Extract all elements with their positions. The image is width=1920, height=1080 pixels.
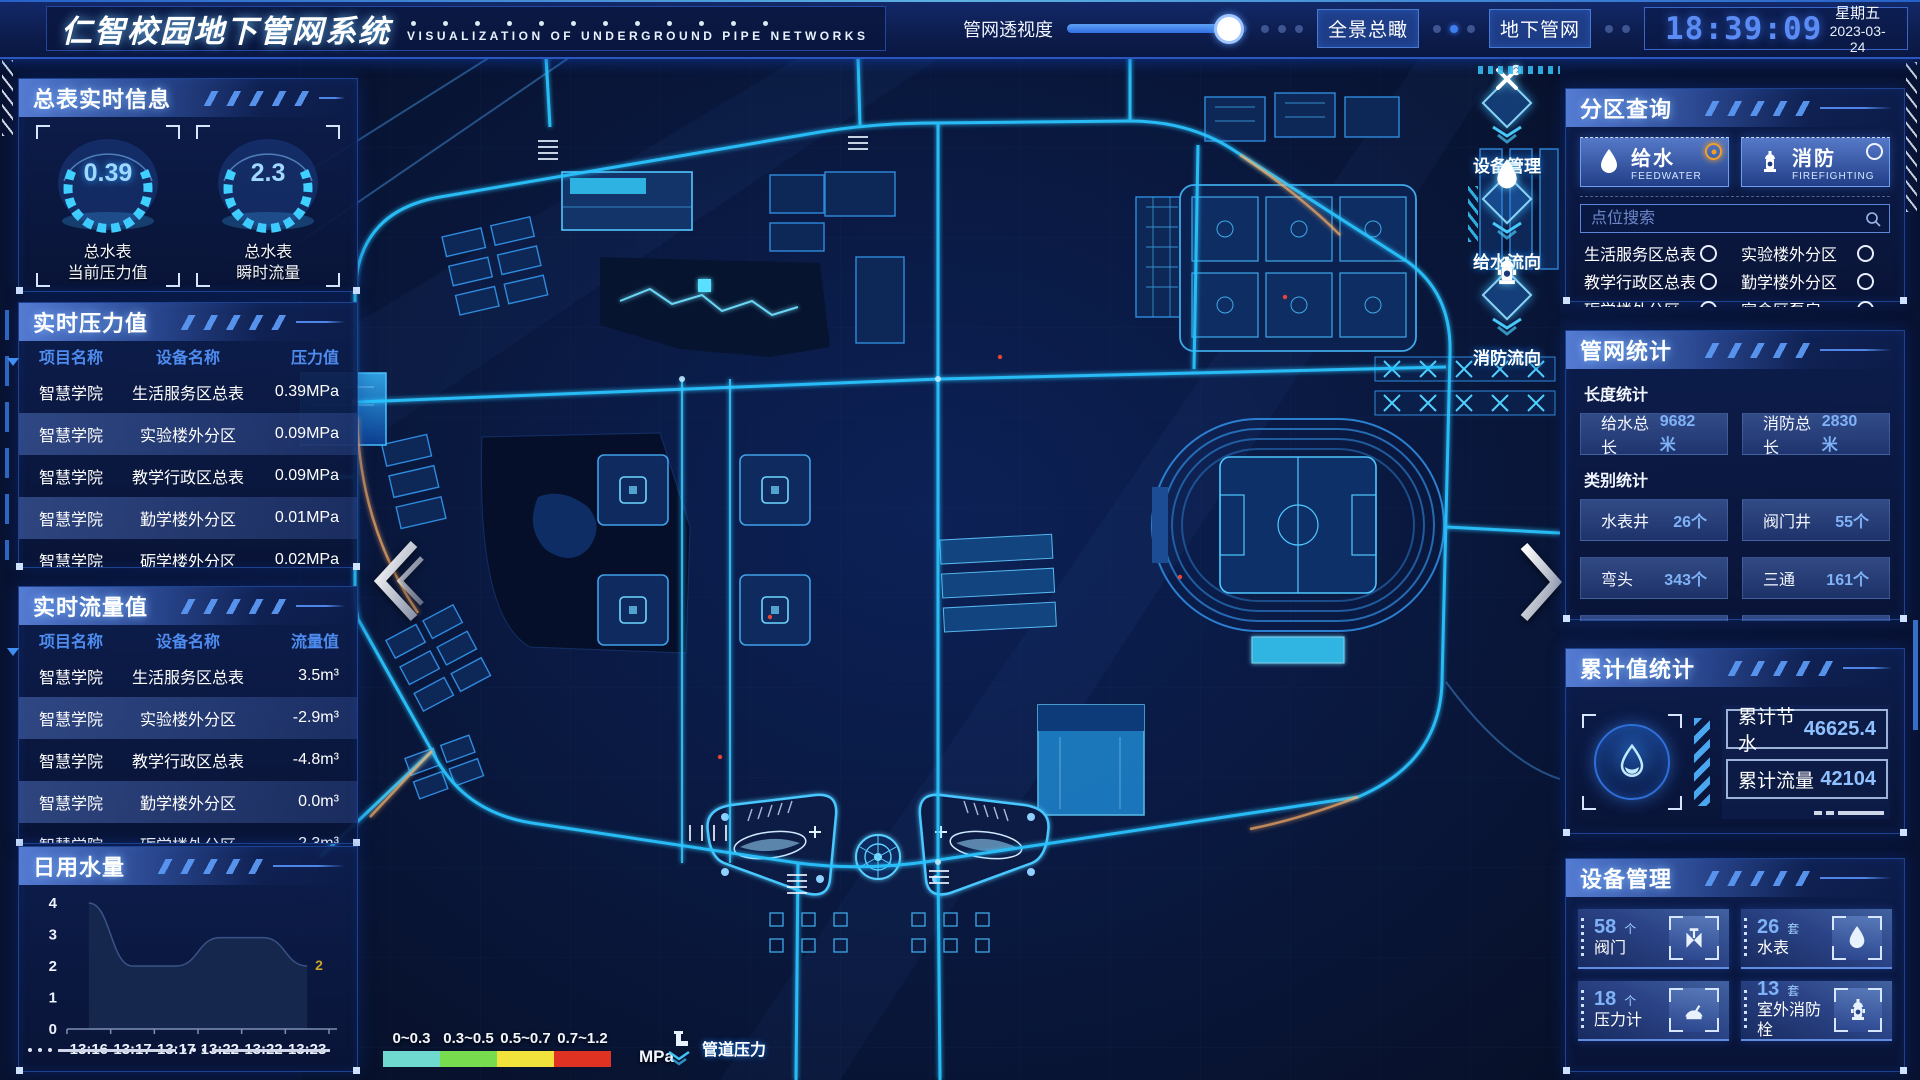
table-row: 智慧学院勤学楼外分区0.01MPa bbox=[19, 497, 357, 539]
app-title-box: 仁智校园地下管网系统 VISUALIZATION OF UNDERGROUND … bbox=[46, 6, 886, 51]
svg-text:3: 3 bbox=[49, 927, 57, 944]
legend-range-label: 0.7~1.2 bbox=[557, 1030, 607, 1051]
stat-box: 消防总长2830米 bbox=[1742, 413, 1890, 455]
panel-header: 总表实时信息 bbox=[19, 79, 357, 117]
radio-selected[interactable] bbox=[1705, 143, 1722, 160]
gauge-label: 瞬时流量 bbox=[196, 263, 340, 284]
stat-box: 给水总长9682米 bbox=[1580, 413, 1728, 455]
panel-title: 分区查询 bbox=[1580, 92, 1672, 124]
search-input[interactable] bbox=[1589, 209, 1865, 229]
table-header-row: 项目名称设备名称流量值 bbox=[19, 625, 357, 655]
gauge-dial: 2.3 bbox=[198, 125, 338, 237]
legend-segment: 0.5~0.7 bbox=[497, 1030, 554, 1067]
realtime-pressure-panel: 实时压力值 项目名称设备名称压力值 智慧学院生活服务区总表0.39MPa 智慧学… bbox=[18, 302, 358, 568]
header-bar: 仁智校园地下管网系统 VISUALIZATION OF UNDERGROUND … bbox=[0, 0, 1920, 59]
daily-water-chart: 13:1613:1713:1713:2213:2213:23012342 bbox=[21, 887, 357, 1074]
stat-box-clipped bbox=[1580, 615, 1728, 621]
header-stripes-decoration bbox=[1698, 871, 1810, 886]
transparency-slider[interactable] bbox=[1067, 24, 1247, 33]
legend-segment: 0.7~1.2 bbox=[554, 1030, 611, 1067]
legend-color-swatch bbox=[554, 1051, 611, 1067]
header-stripes-decoration bbox=[151, 859, 263, 874]
header-line-decoration bbox=[1820, 349, 1892, 351]
legend-range-label: 0.3~0.5 bbox=[443, 1030, 493, 1051]
panorama-overview-button[interactable]: 全景总瞰 bbox=[1317, 9, 1419, 48]
water-icon-frame bbox=[1582, 714, 1682, 810]
bottom-dots-decoration bbox=[28, 1048, 330, 1052]
daily-water-panel: 日用水量 13:1613:1713:1713:2213:2213:2301234… bbox=[18, 846, 358, 1072]
realtime-flow-panel: 实时流量值 项目名称设备名称流量值 智慧学院生活服务区总表3.5m³ 智慧学院实… bbox=[18, 586, 358, 844]
dashboard: 设备管理 给水流向 消防流向 0~0.3 0.3~0.5 0.5~0.7 0.7… bbox=[0, 0, 1920, 1080]
header-line-decoration bbox=[296, 321, 345, 323]
header-stripes-decoration bbox=[197, 91, 309, 106]
header-line-decoration bbox=[296, 605, 345, 607]
dot-separator bbox=[1605, 25, 1630, 33]
hydrant-icon bbox=[1491, 254, 1523, 288]
pressure-gauge-icon bbox=[1681, 998, 1707, 1022]
cumulative-item: 累计流量42104 bbox=[1726, 759, 1888, 799]
header-line-decoration bbox=[273, 865, 345, 867]
legend-color-swatch bbox=[497, 1051, 554, 1067]
chevron-down-icon bbox=[666, 1050, 692, 1066]
table-row: 智慧学院砺学楼外分区-2.3m³ bbox=[19, 823, 357, 843]
edge-hatch-decoration bbox=[2, 60, 13, 136]
zone-query-panel: 分区查询 给水 FEEDWATER 消防 FIREFIGHTING bbox=[1565, 88, 1905, 302]
gauge-label: 总水表 bbox=[36, 242, 180, 263]
radio-unselected[interactable] bbox=[1857, 245, 1874, 262]
list-item[interactable]: 勤学楼外分区 bbox=[1737, 267, 1894, 295]
gauge-label: 总水表 bbox=[196, 242, 340, 263]
clock-panel: 18:39:09 星期五 2023-03-24 bbox=[1644, 7, 1908, 50]
search-icon bbox=[1865, 211, 1881, 227]
header-stripes-decoration bbox=[174, 599, 286, 614]
table-row: 智慧学院实验楼外分区-2.9m³ bbox=[19, 697, 357, 739]
radio-unselected[interactable] bbox=[1857, 301, 1874, 308]
legend-color-swatch bbox=[440, 1051, 497, 1067]
pipe-pressure-label: 管道压力 bbox=[702, 1036, 766, 1060]
title-dots-decoration bbox=[411, 21, 868, 26]
svg-text:4: 4 bbox=[49, 895, 58, 912]
water-drop-icon bbox=[1492, 158, 1522, 192]
legend-segment: 0~0.3 bbox=[383, 1030, 440, 1067]
scrollbar-thumb[interactable] bbox=[1913, 620, 1918, 730]
svg-text:1: 1 bbox=[49, 990, 57, 1007]
category-stats-label: 类别统计 bbox=[1584, 467, 1904, 491]
list-item[interactable]: 砺学楼外分区 bbox=[1580, 295, 1737, 307]
gauge-dial: 0.39 bbox=[38, 125, 178, 237]
dot-separator bbox=[1433, 25, 1475, 33]
table-row: 智慧学院砺学楼外分区0.02MPa bbox=[19, 539, 357, 567]
header-line-decoration bbox=[1843, 667, 1892, 669]
legend-range-label: 0.5~0.7 bbox=[500, 1030, 550, 1051]
svg-text:0: 0 bbox=[49, 1021, 57, 1038]
device-card-water-meters[interactable]: 26套 水表 bbox=[1741, 909, 1892, 969]
radio-unselected[interactable] bbox=[1857, 273, 1874, 290]
dot-separator bbox=[1261, 25, 1303, 33]
panel-title: 管网统计 bbox=[1580, 334, 1672, 366]
hydrant-icon bbox=[1846, 997, 1870, 1023]
app-subtitle: VISUALIZATION OF UNDERGROUND PIPE NETWOR… bbox=[407, 29, 868, 43]
zone-point-list: 生活服务区总表 实验楼外分区 教学行政区总表 勤学楼外分区 砺学楼外分区 宿舍区… bbox=[1580, 239, 1894, 307]
svg-text:0.39: 0.39 bbox=[83, 159, 132, 187]
cyan-hatch-decoration bbox=[1478, 66, 1560, 74]
point-search-box[interactable] bbox=[1580, 204, 1890, 233]
pipe-icon bbox=[668, 1030, 690, 1050]
panel-title: 实时压力值 bbox=[33, 306, 148, 338]
pipe-pressure-legend: 0~0.3 0.3~0.5 0.5~0.7 0.7~1.2 MPa bbox=[383, 1030, 674, 1067]
legend-range-label: 0~0.3 bbox=[393, 1030, 431, 1051]
cumulative-stats-panel: 累计值统计 累计节水46625.4 累计流量42104 bbox=[1565, 648, 1905, 834]
radio-unselected[interactable] bbox=[1866, 143, 1883, 160]
svg-text:2: 2 bbox=[49, 958, 57, 975]
flow-gauge-widget: 2.3 总水表 瞬时流量 bbox=[196, 125, 340, 287]
device-management-panel: 设备管理 58个 阀门 26套 水表 18个 压力计 bbox=[1565, 858, 1905, 1072]
map-prev-arrow[interactable] bbox=[368, 536, 426, 626]
table-row: 智慧学院生活服务区总表0.39MPa bbox=[19, 371, 357, 413]
transparency-slider-label: 管网透视度 bbox=[963, 16, 1053, 42]
network-stats-panel: 管网统计 长度统计 给水总长9682米 消防总长2830米 类别统计 水表井26… bbox=[1565, 330, 1905, 620]
legend-segment: 0.3~0.5 bbox=[440, 1030, 497, 1067]
divider bbox=[1580, 196, 1890, 197]
list-item[interactable]: 教学行政区总表 bbox=[1580, 267, 1737, 295]
header-stripes-decoration bbox=[1721, 661, 1833, 676]
stat-box: 三通161个 bbox=[1742, 557, 1890, 599]
stat-box: 阀门井55个 bbox=[1742, 499, 1890, 541]
radio-unselected[interactable] bbox=[1700, 245, 1717, 262]
pipe-pressure-flag: 管道压力 bbox=[666, 1030, 766, 1066]
cyan-hatch-decoration bbox=[1468, 186, 1478, 242]
water-drop-icon bbox=[1594, 724, 1670, 800]
slider-thumb[interactable] bbox=[1214, 14, 1244, 44]
list-item[interactable]: 宿舍区泵房 bbox=[1737, 295, 1894, 307]
header-line-decoration bbox=[319, 97, 345, 99]
header-line-decoration bbox=[1820, 107, 1892, 109]
water-drop-icon bbox=[1597, 148, 1621, 176]
table-row: 智慧学院生活服务区总表3.5m³ bbox=[19, 655, 357, 697]
panel-title: 日用水量 bbox=[33, 850, 125, 882]
header-stripes-decoration bbox=[1698, 343, 1810, 358]
underground-network-button[interactable]: 地下管网 bbox=[1489, 9, 1591, 48]
panel-pointer-decoration bbox=[7, 358, 19, 366]
map-next-arrow[interactable] bbox=[1516, 540, 1564, 624]
device-card-hydrants[interactable]: 13套 室外消防栓 bbox=[1741, 981, 1892, 1041]
panel-title: 累计值统计 bbox=[1580, 652, 1695, 684]
tab-feedwater[interactable]: 给水 FEEDWATER bbox=[1580, 137, 1729, 187]
panel-title: 设备管理 bbox=[1580, 862, 1672, 894]
map-marker-fire-flow[interactable]: 消防流向 bbox=[1468, 254, 1546, 369]
clock-time: 18:39:09 bbox=[1665, 11, 1822, 47]
water-drop-icon bbox=[1846, 925, 1868, 951]
meter-info-panel: 总表实时信息 0.39 总水表 当前压力值 2.3 bbox=[18, 78, 358, 292]
marker-label: 消防流向 bbox=[1468, 344, 1546, 369]
stat-box: 弯头343个 bbox=[1580, 557, 1728, 599]
edge-hatch-decoration bbox=[1906, 62, 1917, 212]
cumulative-item: 累计节水46625.4 bbox=[1726, 709, 1888, 749]
slider-fill bbox=[1067, 24, 1229, 33]
tab-firefighting[interactable]: 消防 FIREFIGHTING bbox=[1741, 137, 1890, 187]
clock-weekday: 星期五 bbox=[1822, 2, 1893, 23]
stat-box-clipped bbox=[1742, 615, 1890, 621]
svg-text:2: 2 bbox=[315, 957, 323, 973]
table-header-row: 项目名称设备名称压力值 bbox=[19, 341, 357, 371]
stat-box: 水表井26个 bbox=[1580, 499, 1728, 541]
hydrant-icon bbox=[1758, 149, 1782, 175]
table-row: 智慧学院教学行政区总表-4.8m³ bbox=[19, 739, 357, 781]
gauge-label: 当前压力值 bbox=[36, 263, 180, 284]
radio-unselected[interactable] bbox=[1700, 301, 1717, 308]
header-stripes-decoration bbox=[174, 315, 286, 330]
device-card-valves[interactable]: 58个 阀门 bbox=[1578, 909, 1729, 969]
device-card-pressure-gauges[interactable]: 18个 压力计 bbox=[1578, 981, 1729, 1041]
campus-map[interactable] bbox=[300, 57, 1560, 1080]
length-stats-label: 长度统计 bbox=[1584, 381, 1904, 405]
header-stripes-decoration bbox=[1698, 101, 1810, 116]
legend-color-swatch bbox=[383, 1051, 440, 1067]
clock-date: 2023-03-24 bbox=[1822, 23, 1893, 55]
valve-icon bbox=[1681, 925, 1707, 951]
table-row: 智慧学院实验楼外分区0.09MPa bbox=[19, 413, 357, 455]
panel-pointer-decoration bbox=[7, 648, 19, 656]
panel-title: 实时流量值 bbox=[33, 590, 148, 622]
decoration bbox=[1814, 811, 1884, 815]
pressure-gauge-widget: 0.39 总水表 当前压力值 bbox=[36, 125, 180, 287]
list-item[interactable]: 实验楼外分区 bbox=[1737, 239, 1894, 267]
header-line-decoration bbox=[1820, 877, 1892, 879]
table-row: 智慧学院教学行政区总表0.09MPa bbox=[19, 455, 357, 497]
table-row: 智慧学院勤学楼外分区0.0m³ bbox=[19, 781, 357, 823]
list-item[interactable]: 生活服务区总表 bbox=[1580, 239, 1737, 267]
app-title: 仁智校园地下管网系统 bbox=[61, 6, 391, 51]
panel-title: 总表实时信息 bbox=[33, 82, 171, 114]
edge-bar-decoration bbox=[5, 310, 9, 560]
hatch-divider bbox=[1694, 718, 1710, 806]
radio-unselected[interactable] bbox=[1700, 273, 1717, 290]
svg-text:2.3: 2.3 bbox=[251, 159, 286, 187]
